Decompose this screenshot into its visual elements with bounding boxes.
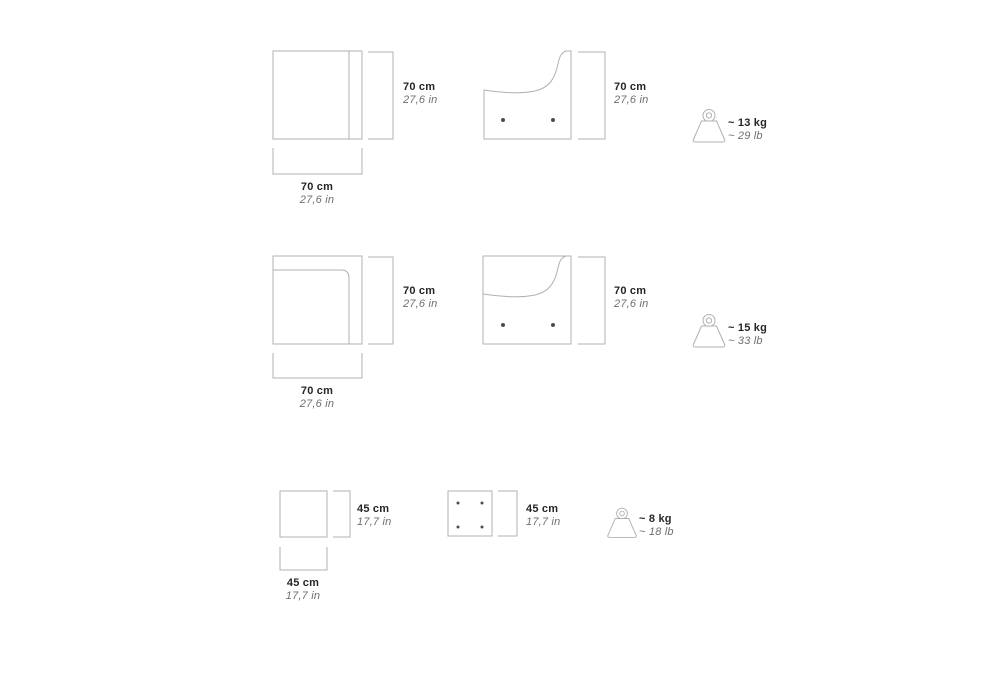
dimension-metric: 70 cm xyxy=(614,81,648,94)
fastener-dot xyxy=(481,526,484,529)
height-dimension-label-row3-front: 45 cm 17,7 in xyxy=(357,503,391,529)
dimension-imperial: 27,6 in xyxy=(614,298,648,311)
weight-metric: ~ 8 kg xyxy=(639,513,674,526)
side-view-drawing-row2 xyxy=(483,256,571,344)
height-dimension-line-row3-front xyxy=(333,491,350,537)
dimension-metric: 70 cm xyxy=(272,181,362,194)
width-dimension-line-row2-front xyxy=(273,353,362,378)
width-dimension-line-row3-front xyxy=(280,547,327,570)
width-dimension-label-row3-front: 45 cm 17,7 in xyxy=(258,577,348,603)
weight-label-row3: ~ 8 kg ~ 18 lb xyxy=(639,513,674,539)
weight-imperial: ~ 18 lb xyxy=(639,526,674,539)
width-dimension-label-row2-front: 70 cm 27,6 in xyxy=(272,385,362,411)
dimension-imperial: 17,7 in xyxy=(258,590,348,603)
height-dimension-line-row1-side xyxy=(578,52,605,139)
top-view-drawing-row3 xyxy=(448,491,492,536)
dimension-imperial: 27,6 in xyxy=(614,94,648,107)
height-dimension-label-row1-side: 70 cm 27,6 in xyxy=(614,81,648,107)
height-dimension-label-row3-top: 45 cm 17,7 in xyxy=(526,503,560,529)
height-dimension-line-row2-side xyxy=(578,257,605,344)
dimension-imperial: 27,6 in xyxy=(403,298,437,311)
weight-label-row2: ~ 15 kg ~ 33 lb xyxy=(728,322,767,348)
fastener-dot xyxy=(501,323,505,327)
height-dimension-label-row1-front: 70 cm 27,6 in xyxy=(403,81,437,107)
fastener-dot xyxy=(551,118,555,122)
weight-imperial: ~ 29 lb xyxy=(728,130,767,143)
front-view-drawing-row2 xyxy=(273,256,362,344)
dimension-metric: 70 cm xyxy=(403,81,437,94)
dimension-metric: 45 cm xyxy=(258,577,348,590)
weight-metric: ~ 13 kg xyxy=(728,117,767,130)
dimension-metric: 70 cm xyxy=(272,385,362,398)
height-dimension-line-row1-front xyxy=(368,52,393,139)
fastener-dot xyxy=(501,118,505,122)
dimension-metric: 45 cm xyxy=(526,503,560,516)
weight-metric: ~ 15 kg xyxy=(728,322,767,335)
fastener-dot xyxy=(551,323,555,327)
dimension-metric: 70 cm xyxy=(403,285,437,298)
fastener-dot xyxy=(457,502,460,505)
front-view-drawing-row1 xyxy=(273,51,362,139)
technical-drawing xyxy=(0,0,1000,700)
height-dimension-line-row2-front xyxy=(368,257,393,344)
dimension-imperial: 27,6 in xyxy=(272,398,362,411)
weight-icon xyxy=(608,508,637,537)
height-dimension-label-row2-side: 70 cm 27,6 in xyxy=(614,285,648,311)
height-dimension-label-row2-front: 70 cm 27,6 in xyxy=(403,285,437,311)
weight-imperial: ~ 33 lb xyxy=(728,335,767,348)
dimension-imperial: 17,7 in xyxy=(526,516,560,529)
front-view-drawing-row3 xyxy=(280,491,327,537)
weight-label-row1: ~ 13 kg ~ 29 lb xyxy=(728,117,767,143)
fastener-dot xyxy=(481,502,484,505)
dimension-imperial: 27,6 in xyxy=(272,194,362,207)
dimension-metric: 70 cm xyxy=(614,285,648,298)
dimension-imperial: 17,7 in xyxy=(357,516,391,529)
dimension-metric: 45 cm xyxy=(357,503,391,516)
fastener-dot xyxy=(457,526,460,529)
weight-icon xyxy=(693,110,725,143)
dimension-diagram: 70 cm 27,6 in 70 cm 27,6 in 70 cm 27,6 i… xyxy=(0,0,1000,700)
height-dimension-line-row3-top xyxy=(498,491,517,536)
width-dimension-line-row1-front xyxy=(273,148,362,174)
dimension-imperial: 27,6 in xyxy=(403,94,437,107)
width-dimension-label-row1-front: 70 cm 27,6 in xyxy=(272,181,362,207)
weight-icon xyxy=(693,315,725,348)
side-view-drawing-row1 xyxy=(484,51,571,139)
